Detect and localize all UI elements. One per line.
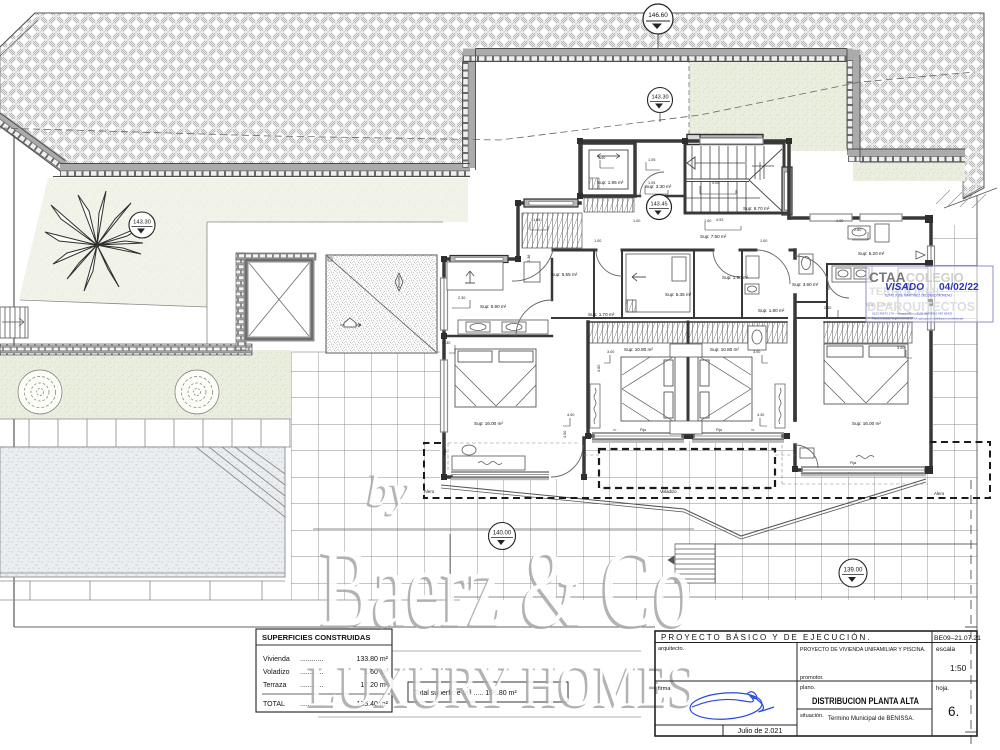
svg-text:4.93: 4.93 [716, 218, 723, 222]
svg-text:Fija: Fija [850, 461, 857, 465]
svg-text:2.30: 2.30 [443, 341, 450, 345]
svg-text:Sup: 16.00 m²: Sup: 16.00 m² [474, 421, 503, 426]
svg-text:PROYECTO BÁSICO Y DE EJECU: PROYECTO BÁSICO Y DE EJECUCIÓN. [661, 633, 871, 642]
svg-text:3.00: 3.00 [897, 346, 904, 350]
svg-text:DISTRIBUCION PLANTA ALTA: DISTRIBUCION PLANTA ALTA [812, 696, 919, 707]
svg-text:Sup: 10.80 m²: Sup: 10.80 m² [710, 347, 739, 352]
svg-text:143.45: 143.45 [650, 202, 667, 208]
svg-text:Vivienda: Vivienda [263, 656, 290, 663]
svg-text:arquitecto.: arquitecto. [658, 646, 685, 652]
svg-text:Sup: 1.95 m²: Sup: 1.95 m² [597, 180, 624, 185]
svg-text:Julio de 2.021: Julio de 2.021 [738, 726, 783, 735]
svg-text:Fijo: Fijo [443, 449, 447, 455]
svg-text:Sup: 5.20 m²: Sup: 5.20 m² [858, 251, 885, 256]
svg-text:4.05: 4.05 [712, 181, 719, 185]
svg-text:LUXURY HOMES: LUXURY HOMES [309, 653, 697, 719]
svg-text:Terraza: Terraza [263, 682, 286, 689]
svg-text:1.40: 1.40 [598, 156, 605, 160]
svg-text:2.40: 2.40 [824, 306, 831, 310]
svg-text:3.60: 3.60 [597, 365, 601, 372]
svg-text:1:50: 1:50 [950, 663, 967, 673]
svg-text:Sup: 10.80 m²: Sup: 10.80 m² [624, 347, 653, 352]
svg-text:3.00: 3.00 [607, 350, 614, 354]
svg-text:promotor.: promotor. [800, 675, 824, 681]
svg-text:2.80: 2.80 [854, 228, 861, 232]
svg-text:1.00: 1.00 [633, 219, 640, 223]
svg-text:4.00: 4.00 [567, 413, 574, 417]
svg-text:Sup: 5.35 m²: Sup: 5.35 m² [665, 292, 692, 297]
svg-text:Sup: 5.55 m²: Sup: 5.55 m² [551, 272, 578, 277]
svg-text:Fijo: Fijo [716, 428, 722, 432]
svg-text:escala: escala [936, 646, 955, 653]
svg-text:Alero: Alero [424, 489, 435, 494]
svg-text:TOTAL: TOTAL [263, 701, 285, 708]
svg-text:1.05: 1.05 [648, 181, 655, 185]
svg-text:143.30: 143.30 [133, 220, 151, 226]
svg-text:Sup: 1.80 m²: Sup: 1.80 m² [758, 308, 785, 313]
svg-text:Alero: Alero [934, 491, 945, 496]
svg-text:139.00: 139.00 [844, 567, 863, 574]
svg-text:by: by [368, 464, 412, 515]
svg-text:situación.: situación. [800, 713, 824, 719]
svg-text:Sup: 1.70 m²: Sup: 1.70 m² [588, 312, 615, 317]
svg-text:Sup: 16.00 m²: Sup: 16.00 m² [852, 421, 881, 426]
svg-text:Voladizo: Voladizo [660, 489, 677, 494]
svg-text:1.65: 1.65 [533, 218, 540, 222]
svg-text:Sup: 5.90 m²: Sup: 5.90 m² [480, 304, 507, 309]
svg-text:63745 JOSE MARTINEZ DELGADO MO: 63745 JOSE MARTINEZ DELGADO MORENO [885, 294, 952, 298]
svg-text:BE09–21.07.21: BE09–21.07.21 [934, 635, 981, 642]
svg-text:firma: firma [658, 686, 671, 692]
svg-text:1.00: 1.00 [760, 239, 767, 243]
svg-text:1.00: 1.00 [594, 239, 601, 243]
svg-text:Sup: 3.60 m²: Sup: 3.60 m² [792, 282, 819, 287]
svg-text:hoja.: hoja. [936, 686, 949, 692]
svg-text:PROYECTO DE VIVIENDA UNIFAM: PROYECTO DE VIVIENDA UNIFAMILIAR Y PISCI… [800, 647, 925, 653]
svg-text:4.30: 4.30 [757, 413, 764, 417]
svg-text:3.00: 3.00 [753, 350, 760, 354]
svg-text:2.38: 2.38 [527, 255, 531, 262]
svg-text:Baerz & Co: Baerz & Co [321, 527, 693, 651]
svg-text:Fijo: Fijo [640, 428, 646, 432]
svg-text:Plano incluido según norma CTA: Plano incluido según norma CTAA aplicaci… [872, 317, 963, 321]
svg-text:plano.: plano. [800, 685, 816, 691]
svg-text:VISADO: VISADO [885, 282, 924, 293]
svg-text:6.: 6. [948, 704, 959, 719]
svg-text:Voladizo: Voladizo [263, 669, 290, 676]
svg-text:0123 45673 170 — Visado A1 — 2: 0123 45673 170 — Visado A1 — 2122 456789… [872, 312, 953, 316]
svg-text:1.00: 1.00 [836, 219, 843, 223]
svg-text:Sup: 1.90 m²: Sup: 1.90 m² [722, 275, 749, 280]
svg-text:Sup: 7.50 m²: Sup: 7.50 m² [700, 234, 727, 239]
svg-text:4.00: 4.00 [563, 431, 567, 438]
svg-text:Sup: 6.70 m²: Sup: 6.70 m² [743, 206, 770, 211]
svg-text:2.30: 2.30 [458, 296, 465, 300]
svg-text:1.05: 1.05 [648, 158, 655, 162]
svg-text:Termino Municipal de BENISSA.: Termino Municipal de BENISSA. [828, 716, 914, 722]
svg-text:146.60: 146.60 [648, 12, 668, 19]
svg-text:04/02/22: 04/02/22 [939, 282, 979, 293]
svg-text:143.30: 143.30 [651, 95, 668, 101]
